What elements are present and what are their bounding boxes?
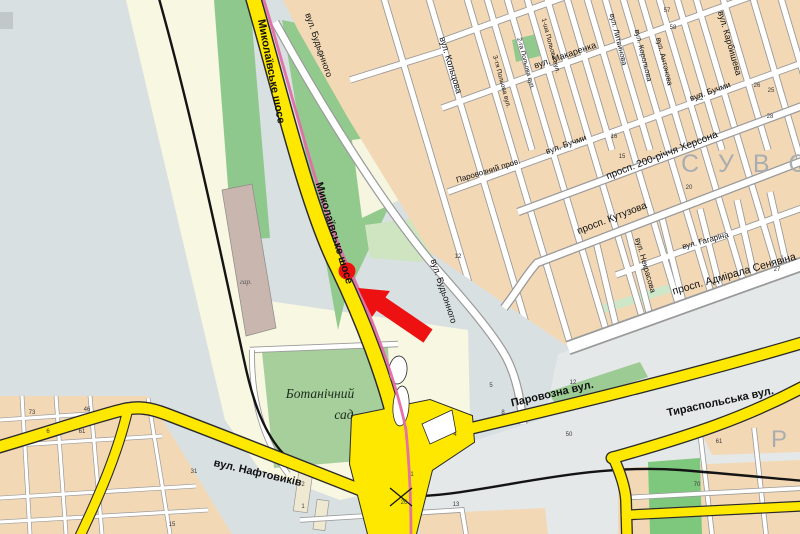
- house-number: 22: [697, 96, 704, 102]
- house-number: 61: [79, 429, 86, 435]
- city-map: Миколаївське шосеМиколаївське шосевул. Б…: [0, 0, 800, 534]
- house-number: 13: [453, 502, 460, 508]
- house-number: 16: [611, 134, 618, 140]
- house-number: 26: [401, 500, 408, 506]
- house-number: 26: [754, 83, 761, 89]
- house-number: 28: [767, 114, 774, 120]
- house-number: 15: [619, 154, 626, 160]
- house-number: 12: [570, 380, 577, 386]
- house-number: 70: [694, 482, 701, 488]
- house-number: 57: [664, 8, 671, 14]
- house-number: 27: [774, 267, 781, 273]
- house-number: 46: [84, 407, 91, 413]
- house-number: 73: [29, 410, 36, 416]
- small-building-block: [0, 12, 13, 29]
- street-label: Р: [771, 426, 787, 453]
- house-number: 31: [191, 469, 198, 475]
- street-label: С У В О Р: [681, 150, 800, 178]
- house-number: 61: [716, 439, 723, 445]
- house-number: 20: [686, 185, 693, 191]
- house-number: 15: [169, 522, 176, 528]
- house-number: 12: [455, 254, 462, 260]
- street-label: сад: [334, 407, 353, 422]
- map-canvas[interactable]: Миколаївське шосеМиколаївське шосевул. Б…: [0, 0, 800, 534]
- street-label: гар.: [240, 277, 252, 286]
- house-number: 50: [566, 432, 573, 438]
- house-number: 52: [317, 52, 324, 58]
- street-label: Ботанічний: [285, 386, 355, 401]
- house-number: 25: [768, 88, 775, 94]
- house-number: 58: [670, 25, 677, 31]
